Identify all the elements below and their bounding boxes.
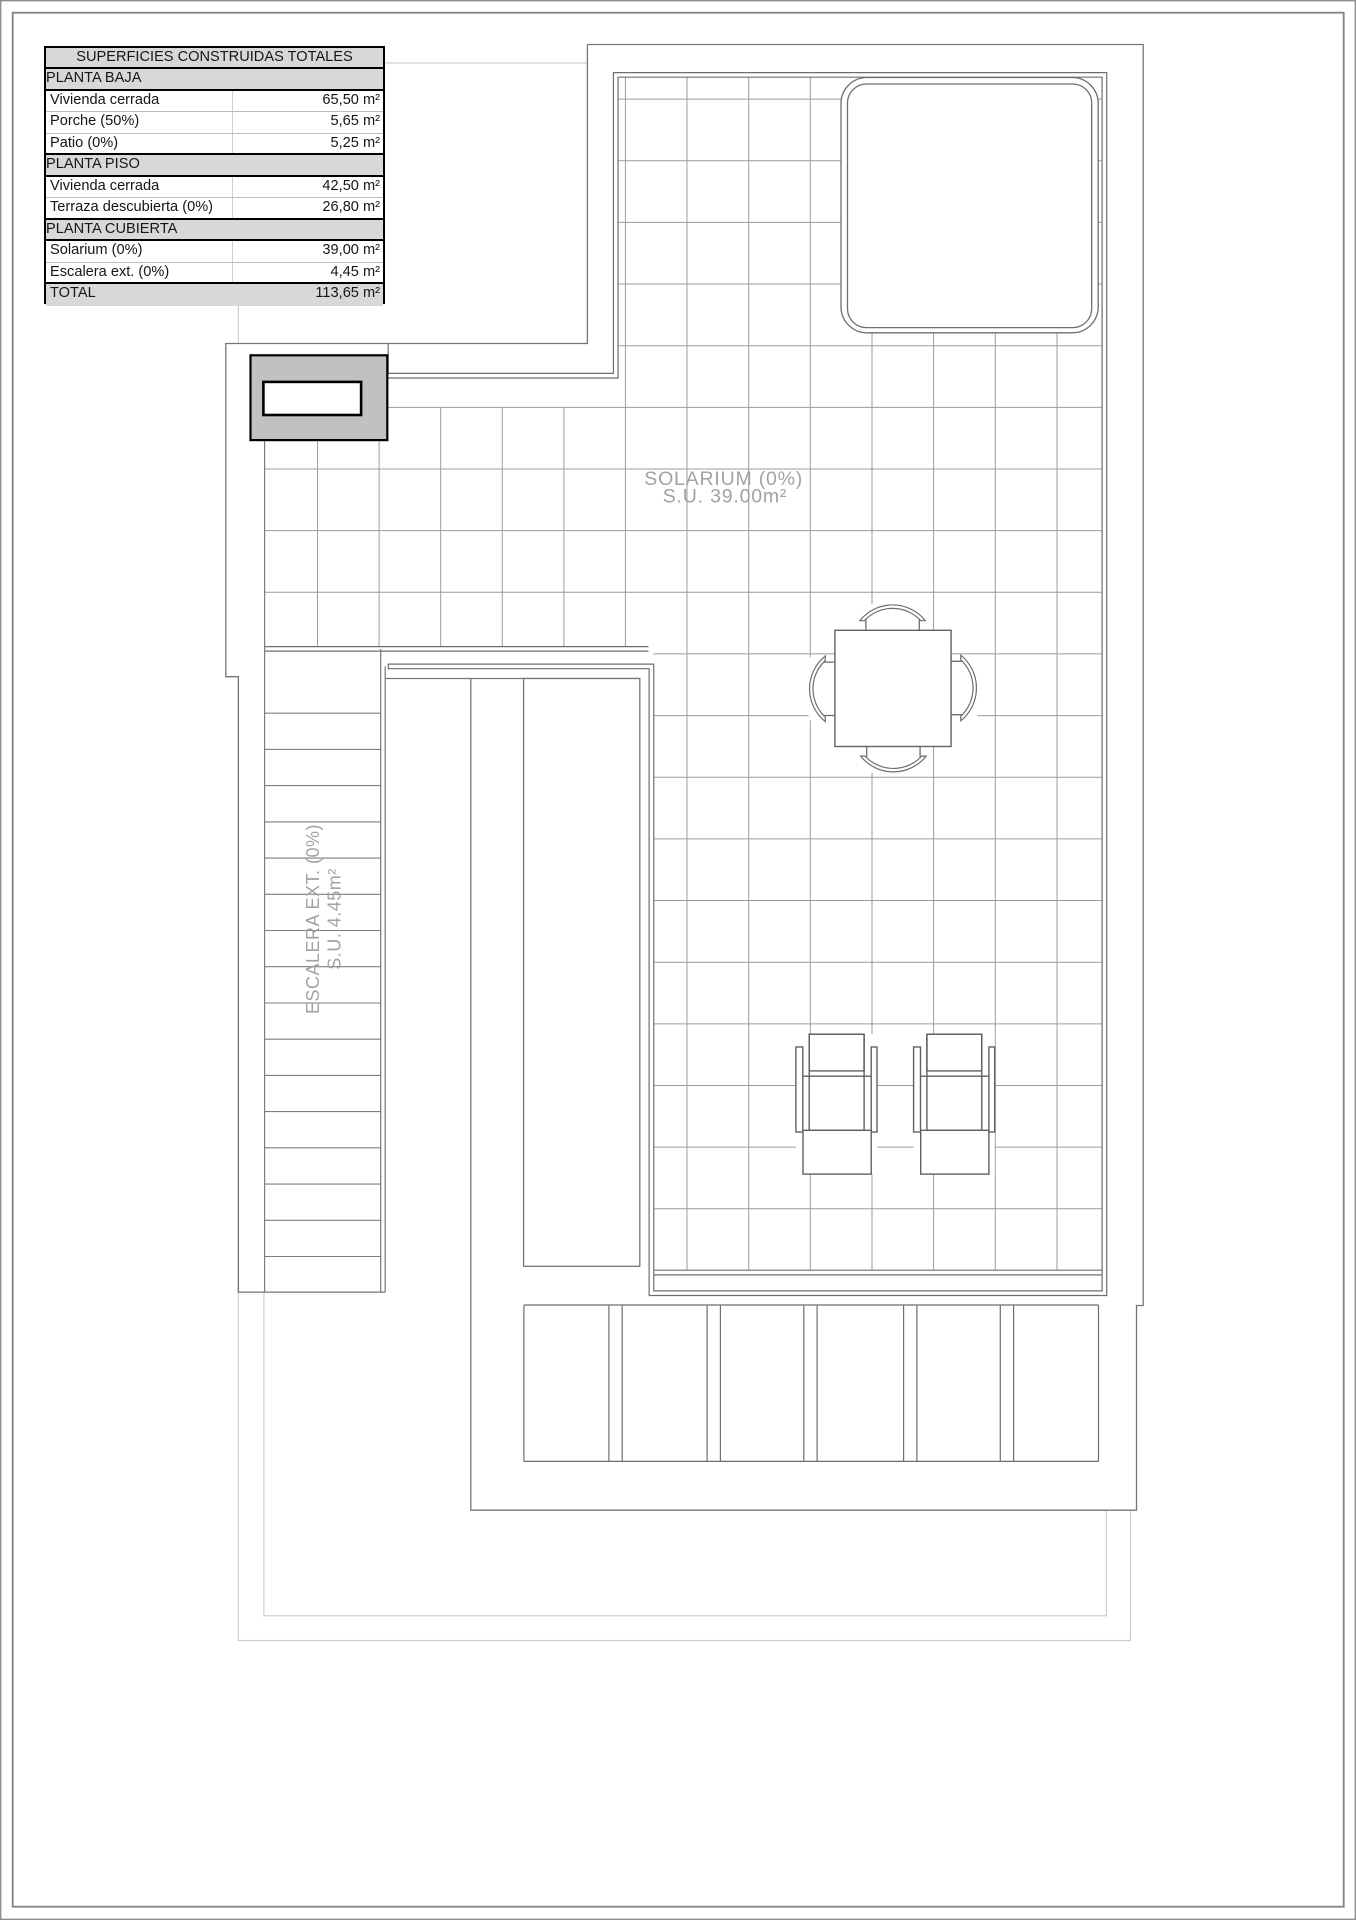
svg-text:ESCALERA EXT. (0%): ESCALERA EXT. (0%) — [303, 824, 323, 1014]
svg-text:S.U. 4.45m²: S.U. 4.45m² — [325, 868, 345, 970]
svg-text:S.U. 39.00m²: S.U. 39.00m² — [663, 486, 787, 508]
